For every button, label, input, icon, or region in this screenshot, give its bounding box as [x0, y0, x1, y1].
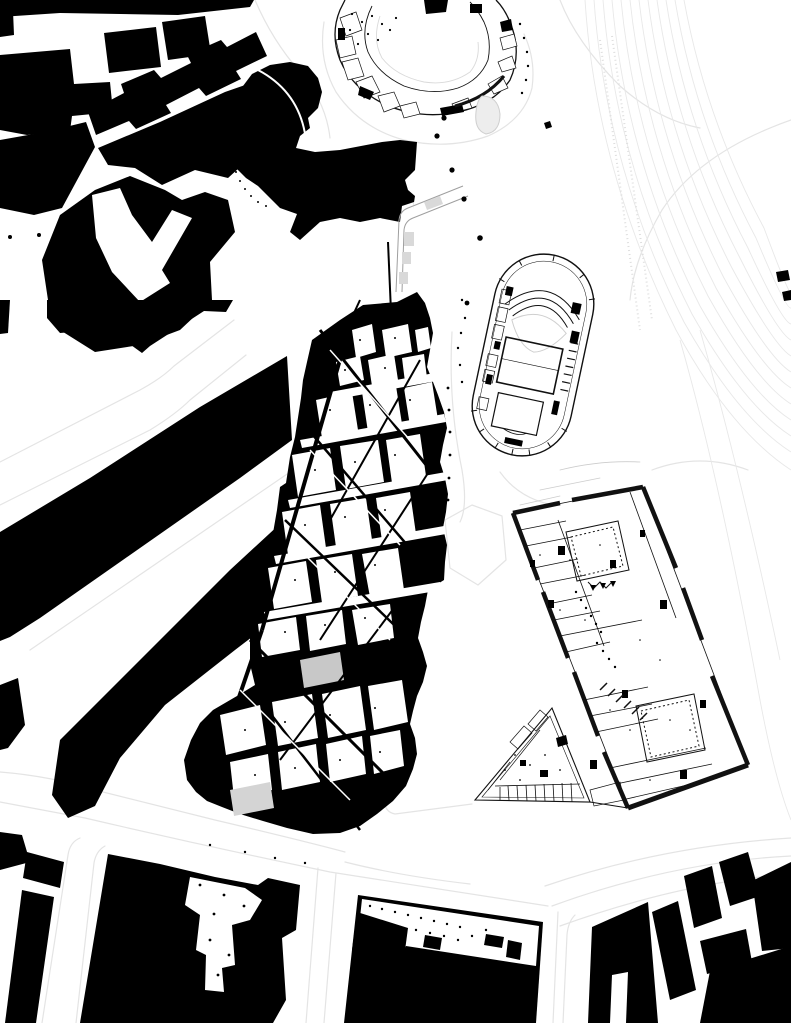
- central-building-plan: [184, 242, 448, 834]
- architectural-site-plan: [0, 0, 791, 1023]
- ring-building-plan: [335, 0, 529, 134]
- site-plan-page: [0, 0, 791, 1023]
- oval-hall-plan: [463, 245, 603, 465]
